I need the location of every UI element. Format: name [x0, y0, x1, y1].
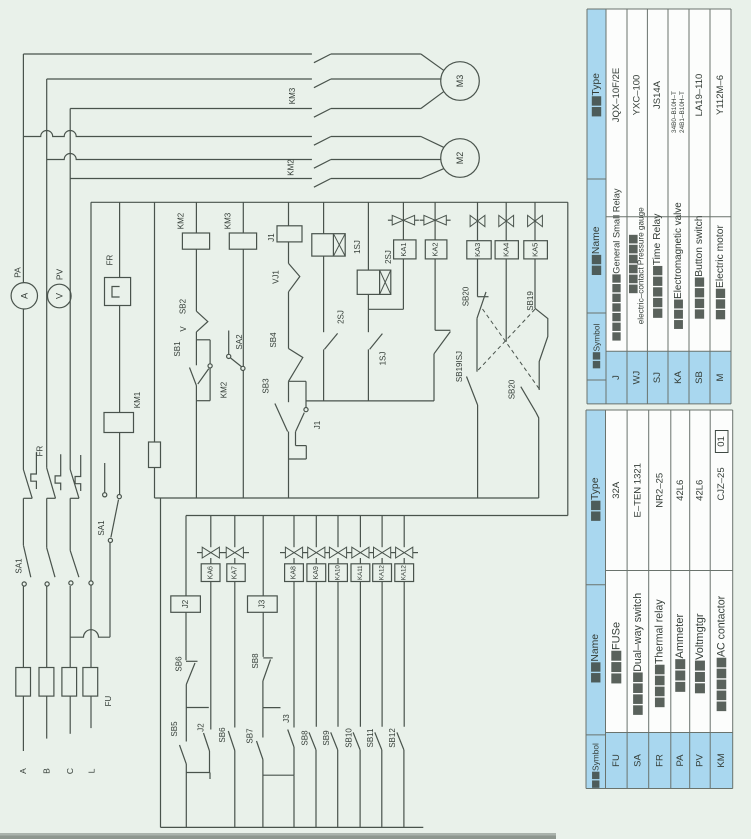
svg-text:KA9: KA9: [313, 566, 320, 579]
svg-text:KM2: KM2: [177, 212, 186, 229]
svg-text:42L6: 42L6: [675, 480, 686, 501]
svg-text:SB5: SB5: [170, 721, 179, 737]
svg-text:SJ: SJ: [652, 372, 663, 383]
svg-text:A: A: [18, 768, 28, 774]
svg-text:KA8: KA8: [291, 566, 298, 579]
svg-text:electric–contact Pressure gaug: electric–contact Pressure gauge: [637, 207, 646, 324]
svg-text:J1: J1: [313, 420, 322, 429]
svg-text:KA4: KA4: [502, 243, 511, 257]
svg-text:J2: J2: [181, 599, 190, 608]
svg-text:PV: PV: [55, 269, 65, 281]
svg-text:JQX–10F/2E: JQX–10F/2E: [611, 68, 622, 122]
svg-text:M3: M3: [455, 75, 465, 88]
svg-text:KA7: KA7: [231, 566, 238, 579]
svg-text:SB11: SB11: [366, 728, 375, 748]
svg-text:KM3: KM3: [224, 212, 233, 229]
svg-text:Symbol: Symbol: [591, 743, 601, 771]
svg-text:Type: Type: [591, 73, 602, 96]
svg-text:SA1: SA1: [97, 520, 106, 536]
svg-text:J: J: [611, 375, 622, 380]
svg-text:JS14A: JS14A: [652, 80, 663, 109]
svg-text:E–TEN 1321: E–TEN 1321: [632, 463, 643, 517]
svg-text:SB3: SB3: [262, 378, 271, 394]
svg-text:PV: PV: [694, 754, 705, 767]
svg-text:L: L: [86, 768, 96, 773]
svg-text:KA: KA: [673, 371, 684, 384]
svg-text:AC contactor: AC contactor: [715, 595, 727, 657]
svg-text:C: C: [65, 768, 75, 774]
svg-text:FR: FR: [654, 754, 665, 767]
svg-text:SB6: SB6: [175, 656, 184, 672]
svg-text:KA12: KA12: [401, 565, 408, 581]
svg-text:KA3: KA3: [473, 243, 482, 257]
svg-text:FR: FR: [106, 254, 115, 265]
svg-text:J3: J3: [282, 714, 291, 723]
svg-text:J3: J3: [258, 599, 267, 608]
svg-text:SB20: SB20: [462, 286, 471, 306]
svg-text:SB4: SB4: [269, 332, 278, 348]
svg-text:SB6: SB6: [218, 727, 227, 743]
svg-text:SB12: SB12: [388, 728, 397, 748]
svg-text:KA1: KA1: [399, 242, 408, 256]
svg-text:KA6: KA6: [207, 566, 214, 579]
svg-text:SA1: SA1: [15, 558, 24, 574]
svg-text:KA10: KA10: [335, 565, 342, 581]
svg-text:V: V: [54, 293, 64, 299]
svg-text:PA: PA: [675, 754, 686, 767]
svg-text:Ammeter: Ammeter: [674, 614, 686, 659]
svg-text:SB: SB: [694, 371, 705, 384]
svg-text:J1: J1: [267, 233, 276, 242]
svg-text:42L6: 42L6: [694, 480, 705, 501]
svg-text:01: 01: [716, 436, 727, 447]
svg-text:2SJ: 2SJ: [337, 310, 346, 324]
svg-text:SB19: SB19: [526, 291, 535, 311]
svg-text:24B1–B10H–T: 24B1–B10H–T: [679, 91, 686, 133]
svg-text:WJ: WJ: [632, 370, 643, 384]
svg-text:SA2: SA2: [235, 334, 244, 350]
svg-text:FU: FU: [611, 754, 622, 767]
svg-text:KM2: KM2: [287, 159, 296, 176]
svg-text:Symbol: Symbol: [592, 323, 602, 351]
svg-text:Electric motor: Electric motor: [715, 225, 726, 289]
svg-text:SB10: SB10: [344, 728, 353, 748]
svg-text:PA: PA: [13, 267, 23, 278]
svg-text:J2: J2: [197, 723, 206, 732]
svg-text:KM2: KM2: [220, 381, 229, 398]
svg-text:LA19–110: LA19–110: [694, 74, 705, 117]
svg-text:Thermal relay: Thermal relay: [654, 599, 666, 664]
svg-text:2SJ: 2SJ: [384, 250, 393, 264]
svg-text:General Small Relay: General Small Relay: [612, 188, 622, 274]
svg-text:1SJ: 1SJ: [353, 240, 362, 254]
svg-text:Voltmgtgr: Voltmgtgr: [694, 613, 706, 660]
svg-text:KM3: KM3: [288, 87, 297, 104]
svg-text:Name: Name: [590, 634, 601, 662]
svg-text:Time Relay: Time Relay: [652, 213, 663, 266]
svg-text:FR: FR: [36, 445, 45, 456]
svg-text:32A: 32A: [611, 481, 622, 499]
svg-text:Dual–way switch: Dual–way switch: [632, 593, 644, 672]
svg-text:M2: M2: [455, 152, 465, 165]
svg-text:SB8: SB8: [300, 730, 309, 746]
svg-text:SB19ISJ: SB19ISJ: [455, 351, 464, 382]
svg-text:SB2: SB2: [179, 298, 188, 314]
svg-text:B: B: [41, 768, 51, 774]
svg-text:SB9: SB9: [322, 730, 331, 746]
svg-text:SB1: SB1: [173, 341, 182, 357]
svg-text:SB20: SB20: [508, 379, 517, 399]
svg-text:A: A: [19, 293, 29, 299]
svg-text:CJZ–25: CJZ–25: [716, 467, 727, 500]
svg-text:KA5: KA5: [531, 243, 540, 257]
svg-text:34B0–B10H–T: 34B0–B10H–T: [671, 91, 678, 133]
svg-text:Type: Type: [590, 477, 601, 500]
svg-text:KM: KM: [716, 753, 727, 767]
svg-text:Name: Name: [591, 226, 602, 254]
svg-text:KM1: KM1: [133, 391, 142, 408]
svg-text:FU: FU: [104, 695, 113, 706]
svg-text:KA12: KA12: [379, 565, 386, 581]
svg-text:KA2: KA2: [431, 242, 440, 256]
svg-text:M: M: [715, 374, 726, 382]
svg-text:V: V: [179, 326, 188, 332]
svg-text:Electromagnetic valve: Electromagnetic valve: [673, 202, 684, 299]
svg-text:SB7: SB7: [246, 728, 255, 744]
svg-text:1SJ: 1SJ: [379, 352, 388, 366]
svg-text:SB8: SB8: [251, 653, 260, 669]
svg-text:Y112M–6: Y112M–6: [715, 75, 726, 115]
svg-text:FUSe: FUSe: [610, 622, 622, 650]
svg-text:VJ1: VJ1: [272, 270, 281, 284]
svg-text:SA: SA: [632, 754, 643, 767]
svg-text:NR2–25: NR2–25: [654, 473, 665, 508]
svg-text:YXC–100: YXC–100: [632, 75, 643, 116]
svg-text:Button switch: Button switch: [694, 215, 705, 277]
svg-text:KA11: KA11: [357, 565, 364, 580]
